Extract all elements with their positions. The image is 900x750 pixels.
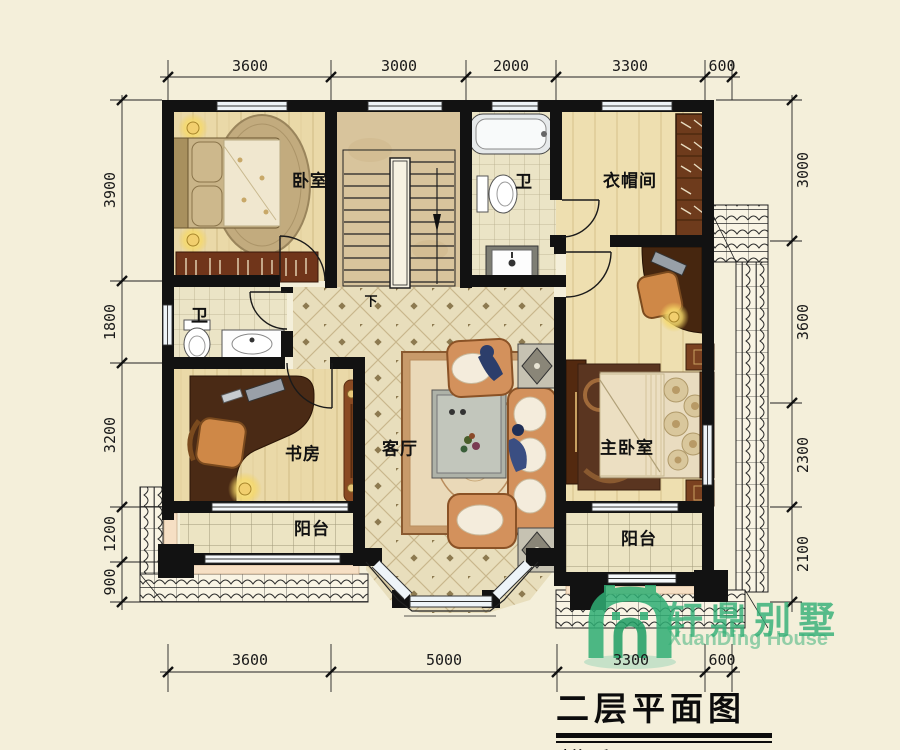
dim-left-3: 1200 xyxy=(101,516,119,552)
dim-bottom-1: 5000 xyxy=(426,651,462,669)
dim-bottom-3: 600 xyxy=(708,651,735,669)
title-rule-thick xyxy=(556,733,772,738)
stairs-down-label: 下 xyxy=(364,291,377,310)
logo-text-en: XuanDing House xyxy=(668,628,828,651)
room-label-balcony-left: 阳台 xyxy=(294,515,330,540)
room-label-bath-mid: 卫 xyxy=(191,302,209,327)
dim-bottom-2: 3300 xyxy=(613,651,649,669)
title-block: 二层平面图 建筑面积122.34m² xyxy=(556,682,772,750)
floorplan-canvas: 卧室 卫 衣帽间 卫 书房 客厅 主卧室 阳台 阳台 下 3600 3000 2… xyxy=(0,0,900,750)
room-label-study: 书房 xyxy=(285,440,321,465)
room-label-master: 主卧室 xyxy=(600,434,654,459)
dim-bottom-0: 3600 xyxy=(232,651,268,669)
dim-left-1: 1800 xyxy=(101,304,119,340)
room-label-bedroom: 卧室 xyxy=(292,167,328,192)
dim-right-0: 3000 xyxy=(794,152,812,188)
dim-left-0: 3900 xyxy=(101,172,119,208)
labels-layer: 卧室 卫 衣帽间 卫 书房 客厅 主卧室 阳台 阳台 下 3600 3000 2… xyxy=(0,0,900,750)
dim-right-1: 3600 xyxy=(794,304,812,340)
room-label-bath-top: 卫 xyxy=(515,168,533,193)
dim-top-4: 600 xyxy=(708,57,735,75)
dim-top-0: 3600 xyxy=(232,57,268,75)
dim-left-2: 3200 xyxy=(101,417,119,453)
room-label-cloakroom: 衣帽间 xyxy=(603,167,657,192)
room-label-balcony-right: 阳台 xyxy=(621,525,657,550)
dim-top-2: 2000 xyxy=(493,57,529,75)
dim-right-2: 2300 xyxy=(794,437,812,473)
room-label-living: 客厅 xyxy=(382,435,418,460)
dim-left-4: 900 xyxy=(101,568,119,595)
building-area-text: 建筑面积122.34m² xyxy=(556,746,772,750)
dim-top-1: 3000 xyxy=(381,57,417,75)
dim-right-3: 2100 xyxy=(794,536,812,572)
plan-title: 二层平面图 xyxy=(556,682,772,730)
title-rule-thin xyxy=(556,741,772,743)
dim-top-3: 3300 xyxy=(612,57,648,75)
